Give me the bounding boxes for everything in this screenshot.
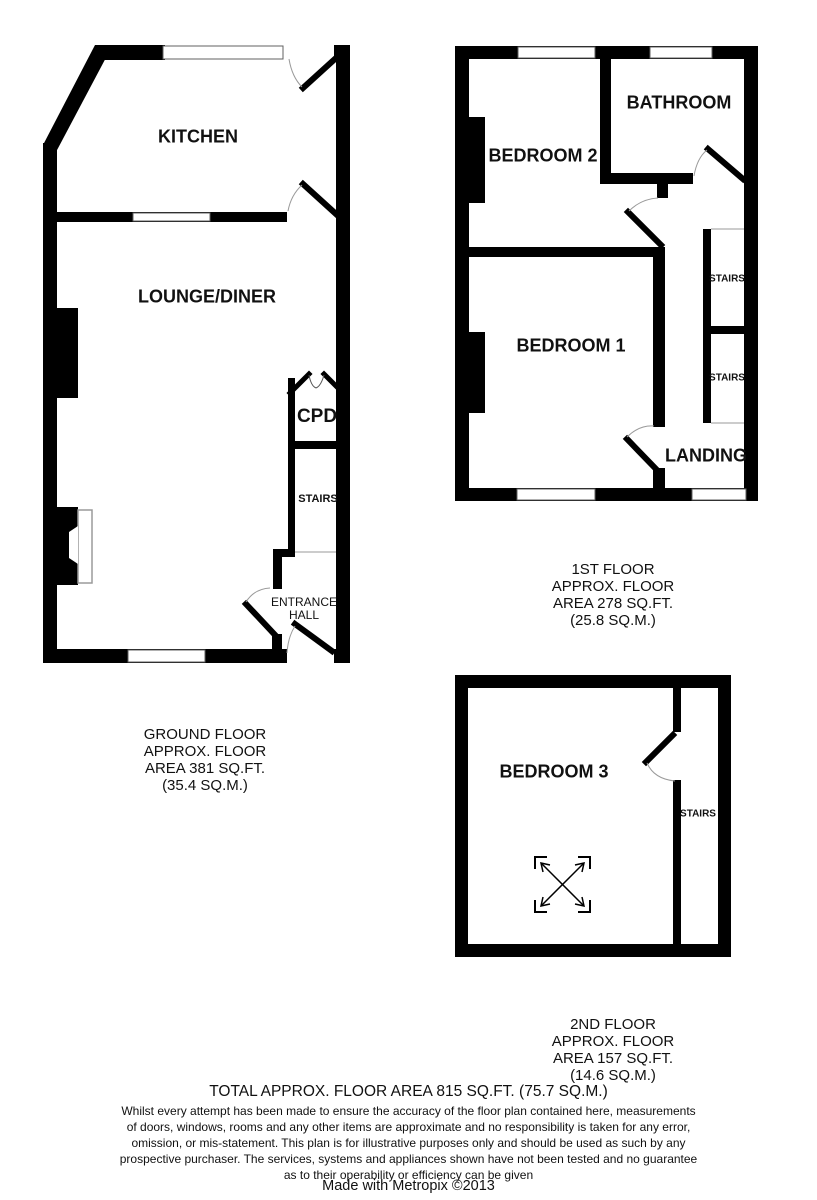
- total-floor-area: TOTAL APPROX. FLOOR AREA 815 SQ.FT. (75.…: [0, 1083, 817, 1101]
- first-floor-caption-line3: AREA 278 SQ.FT.: [503, 595, 723, 612]
- disclaimer-line1: Whilst every attempt has been made to en…: [0, 1104, 817, 1120]
- second-floor-caption-line4: (14.6 SQ.M.): [503, 1067, 723, 1084]
- bathroom-label: BATHROOM: [627, 93, 732, 114]
- chimney-breast: [57, 308, 78, 398]
- kitchen-label: KITCHEN: [158, 127, 238, 148]
- door: [694, 149, 743, 179]
- disclaimer-line4: prospective purchaser. The services, sys…: [0, 1152, 817, 1168]
- door: [289, 58, 336, 88]
- angled-wall: [43, 45, 109, 152]
- door: [646, 735, 675, 781]
- ground-floor-caption: GROUND FLOOR APPROX. FLOOR AREA 381 SQ.F…: [95, 726, 315, 794]
- door: [287, 624, 332, 653]
- first-stairs-lower-label: STAIRS: [709, 373, 745, 384]
- second-stairs-label: STAIRS: [680, 809, 716, 820]
- ground-floor-caption-line4: (35.4 SQ.M.): [95, 777, 315, 794]
- first-floor-caption-line1: 1ST FLOOR: [503, 561, 723, 578]
- chimney-breast: [469, 332, 485, 413]
- chimney-breast: [469, 117, 485, 203]
- credit-line: Made with Metropix ©2013: [0, 1178, 817, 1194]
- disclaimer: Whilst every attempt has been made to en…: [0, 1104, 817, 1184]
- bedroom2-label: BEDROOM 2: [488, 146, 597, 167]
- door: [628, 198, 661, 245]
- disclaimer-line3: omission, or mis-statement. This plan is…: [0, 1136, 817, 1152]
- entrance-hall-label-line1: ENTRANCE: [271, 595, 337, 609]
- cpd-label: CPD: [297, 406, 337, 428]
- second-floor-caption: 2ND FLOOR APPROX. FLOOR AREA 157 SQ.FT. …: [503, 1016, 723, 1084]
- first-floor-caption-line4: (25.8 SQ.M.): [503, 612, 723, 629]
- second-floor-caption-line1: 2ND FLOOR: [503, 1016, 723, 1033]
- lounge-diner-label: LOUNGE/DINER: [138, 287, 276, 308]
- rooflight-symbol: [535, 857, 590, 912]
- landing-label: LANDING: [665, 446, 747, 467]
- door: [288, 184, 336, 214]
- second-floor-caption-line2: APPROX. FLOOR: [503, 1033, 723, 1050]
- first-floor-caption-line2: APPROX. FLOOR: [503, 578, 723, 595]
- cupboard-doors: [290, 374, 341, 393]
- entrance-hall-label-line2: HALL: [289, 608, 319, 622]
- ground-floor-caption-line3: AREA 381 SQ.FT.: [95, 760, 315, 777]
- door: [627, 426, 665, 488]
- ground-floor-caption-line2: APPROX. FLOOR: [95, 743, 315, 760]
- bedroom3-label: BEDROOM 3: [499, 762, 608, 783]
- first-floor-caption: 1ST FLOOR APPROX. FLOOR AREA 278 SQ.FT. …: [503, 561, 723, 629]
- floorplan-page: KITCHEN LOUNGE/DINER CPD STAIRS ENTRANCE…: [0, 0, 817, 1200]
- disclaimer-line2: of doors, windows, rooms and any other i…: [0, 1120, 817, 1136]
- first-stairs-upper-label: STAIRS: [709, 274, 745, 285]
- ground-floor-caption-line1: GROUND FLOOR: [95, 726, 315, 743]
- ground-stairs-label: STAIRS: [298, 493, 338, 505]
- second-floor-caption-line3: AREA 157 SQ.FT.: [503, 1050, 723, 1067]
- bedroom1-label: BEDROOM 1: [516, 336, 625, 357]
